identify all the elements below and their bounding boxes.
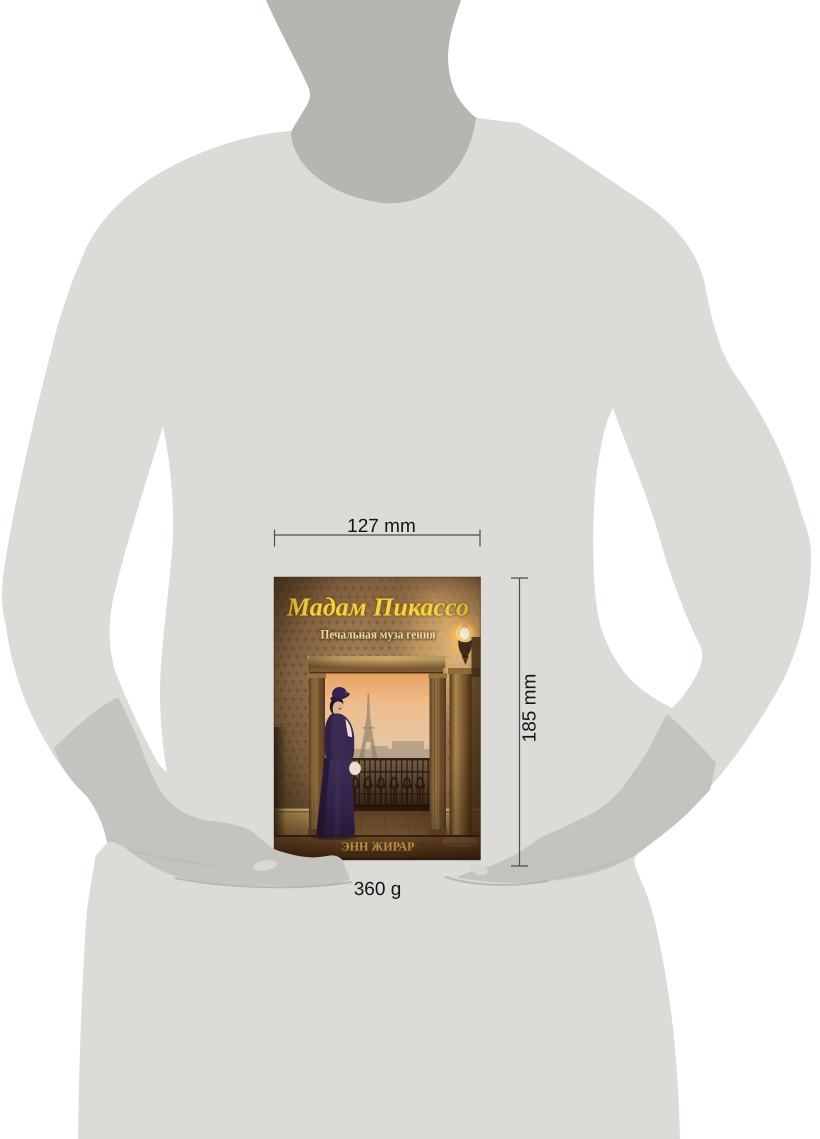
svg-text:185 mm: 185 mm [520, 674, 541, 743]
svg-text:360 g: 360 g [354, 879, 402, 900]
svg-text:127 mm: 127 mm [347, 516, 416, 537]
